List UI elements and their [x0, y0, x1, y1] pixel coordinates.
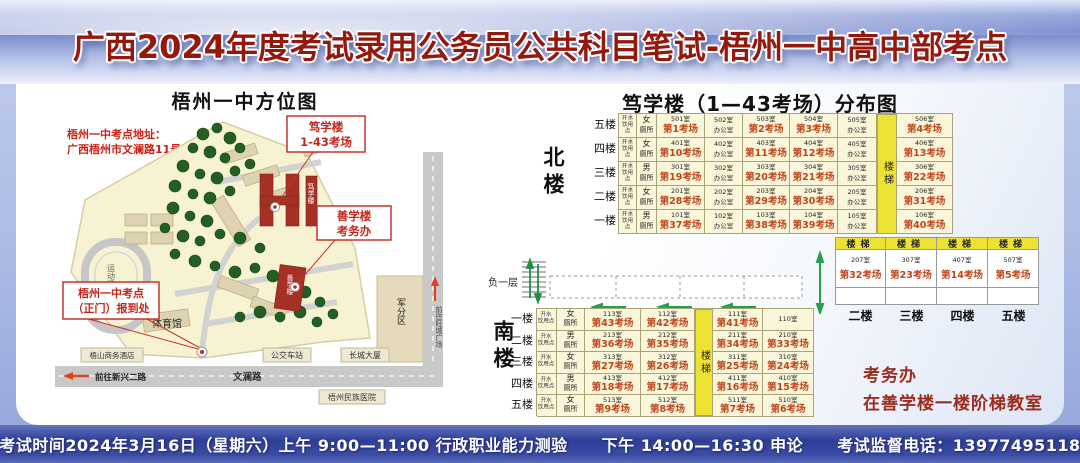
room-number: 310室 — [779, 354, 798, 361]
room-label: 第30考场 — [793, 197, 835, 207]
toilet-gender: 女 — [643, 116, 651, 125]
office-note-line1: 考务办 — [863, 362, 1043, 390]
room-number: 506室 — [915, 116, 934, 123]
room-label: 办公室 — [714, 199, 734, 206]
room-number: 202室 — [714, 189, 733, 196]
wing-column: 楼梯307室第23考场 — [886, 237, 937, 305]
toilet-label: 厕所 — [640, 151, 654, 159]
room-number: 501室 — [671, 116, 690, 123]
room-cell: 412室第17考场 — [641, 374, 695, 396]
water-cell: 开水饮用点 — [537, 395, 557, 417]
toilet-label: 厕所 — [640, 175, 654, 183]
room-cell: 205室办公室 — [838, 186, 877, 210]
room-number: 303室 — [757, 164, 776, 171]
south-floor-labels: 一楼二楼三楼四楼五楼 — [510, 308, 534, 416]
water-label: 开水饮用点 — [620, 140, 636, 159]
water-label: 开水饮用点 — [538, 356, 555, 369]
room-cell: 510室第6考场 — [763, 395, 814, 417]
toilet-cell: 女厕所 — [637, 186, 657, 210]
room-number: 410室 — [779, 375, 798, 382]
room-cell: 201室第28考场 — [657, 186, 705, 210]
callout-gate-line2: （正门）报到处 — [73, 301, 151, 315]
duxue-building: 笃学楼 — [260, 174, 317, 226]
room-cell: 407室第14考场 — [937, 250, 988, 288]
room-cell: 413室第18考场 — [585, 374, 641, 396]
room-number: 206室 — [915, 188, 934, 195]
room-cell: 404室第12考场 — [790, 138, 838, 162]
north-table: 开水饮用点女厕所501室第1考场502室办公室503室第2考场504室第3考场5… — [618, 113, 953, 234]
room-cell: 203室第29考场 — [743, 186, 790, 210]
room-cell: 410室第15考场 — [763, 374, 814, 396]
room-number: 102室 — [714, 213, 733, 220]
room-cell: 302室办公室 — [705, 162, 743, 186]
room-label: 第22考场 — [904, 173, 946, 183]
room-number: 103室 — [757, 212, 776, 219]
military-label: 军分区 — [395, 298, 406, 325]
toilet-gender: 男 — [643, 164, 651, 173]
exam-session-afternoon: 下午 14:00—16:30 申论 — [602, 432, 804, 456]
toilet-cell: 女厕所 — [557, 309, 585, 331]
toilet-gender: 女 — [567, 310, 575, 319]
banner: 广西2024年度考试录用公务员公共科目笔试-梧州一中高中部考点 — [0, 0, 1080, 84]
to-wangcheng-label: 前往旺城广场 — [435, 305, 443, 349]
room-cell: 102室办公室 — [705, 210, 743, 234]
room-label: 第7考场 — [720, 405, 755, 415]
room-number: 403室 — [757, 140, 776, 147]
room-cell: 206室第31考场 — [897, 186, 953, 210]
room-cell: 405室办公室 — [838, 138, 877, 162]
room-label: 第25考场 — [717, 362, 759, 372]
north-row: 开水饮用点女厕所201室第28考场202室办公室203室第29考场204室第30… — [619, 186, 953, 210]
water-cell: 开水饮用点 — [537, 331, 557, 353]
room-number: 507室 — [1004, 257, 1023, 264]
toilet-cell: 男厕所 — [557, 331, 585, 353]
map-address-line1: 梧州一中考点地址： — [67, 127, 166, 141]
empty-cell — [988, 288, 1039, 305]
room-cell: 313室第27考场 — [585, 352, 641, 374]
supervision-phone: 考试监督电话：13977495118 — [837, 432, 1080, 456]
room-cell: 110室 — [763, 309, 814, 331]
toilet-cell: 男厕所 — [637, 162, 657, 186]
basement-stairs-icon — [522, 262, 546, 297]
room-cell: 104室第39考场 — [790, 210, 838, 234]
room-number: 113室 — [603, 311, 622, 318]
toilet-cell: 女厕所 — [637, 138, 657, 162]
office-note: 考务办 在善学楼一楼阶梯教室 — [863, 362, 1043, 418]
water-line2: 饮用点 — [538, 362, 555, 368]
water-cell: 开水饮用点 — [619, 210, 637, 234]
poster: 广西2024年度考试录用公务员公共科目笔试-梧州一中高中部考点 梧州一中方位图 … — [0, 0, 1080, 463]
room-label: 第12考场 — [793, 149, 835, 159]
room-cell: 505室办公室 — [838, 114, 877, 138]
water-line2: 饮用点 — [620, 146, 636, 159]
room-number: 412室 — [658, 375, 677, 382]
stair-column: 楼梯 — [695, 309, 713, 416]
room-label: 第17考场 — [647, 383, 689, 393]
room-cell: 111室第41考场 — [713, 309, 763, 331]
room-number: 212室 — [658, 332, 677, 339]
toilet-cell: 男厕所 — [557, 374, 585, 396]
room-label: 办公室 — [847, 223, 867, 230]
floor-label: 三楼 — [886, 307, 937, 324]
room-label: 第8考场 — [650, 405, 685, 415]
room-number: 312室 — [658, 354, 677, 361]
room-number: 502室 — [714, 117, 733, 124]
north-row: 开水饮用点男厕所101室第37考场102室办公室103室第38考场104室第39… — [619, 210, 953, 234]
wing-column: 楼梯407室第14考场 — [937, 237, 988, 305]
floor-label: 五楼 — [592, 113, 618, 137]
toilet-gender: 男 — [643, 212, 651, 221]
callout-duxue-line1: 笃学楼 — [308, 120, 344, 134]
room-cell: 204室第30考场 — [790, 186, 838, 210]
room-label: 第16考场 — [717, 383, 759, 393]
room-number: 402室 — [714, 141, 733, 148]
room-number: 513室 — [603, 397, 622, 404]
room-number: 307室 — [902, 257, 921, 264]
room-cell: 502室办公室 — [705, 114, 743, 138]
room-cell: 307室第23考场 — [886, 250, 937, 288]
road-horizontal: 前往新兴二路 文澜路 — [55, 366, 443, 387]
south-row: 开水饮用点女厕所313室第27考场312室第26考场311室第25考场310室第… — [537, 352, 814, 374]
callout-gate-line1: 梧州一中考点 — [78, 286, 144, 300]
water-line2: 饮用点 — [538, 384, 555, 390]
room-cell: 511室第7考场 — [713, 395, 763, 417]
floor-label: 四楼 — [592, 137, 618, 161]
room-number: 504室 — [804, 116, 823, 123]
toilet-label: 厕所 — [640, 223, 654, 231]
wenlan-road-label: 文澜路 — [232, 371, 262, 383]
basement-stairs-arrows — [527, 260, 541, 302]
room-cell: 202室办公室 — [705, 186, 743, 210]
room-number: 407室 — [953, 257, 972, 264]
room-number: 205室 — [848, 189, 867, 196]
stair-cell: 楼梯 — [988, 237, 1039, 250]
toilet-cell: 女厕所 — [637, 114, 657, 138]
road-vertical: 前往旺城广场 — [423, 152, 443, 387]
room-cell: 304室第21考场 — [790, 162, 838, 186]
hospital-label: 梧州民族医院 — [328, 392, 376, 402]
changcheng-tower-label: 长城大厦 — [349, 350, 381, 360]
stair-cell: 楼梯 — [835, 237, 886, 250]
room-cell: 503室第2考场 — [743, 114, 790, 138]
toilet-gender: 男 — [567, 332, 575, 341]
room-number: 213室 — [603, 332, 622, 339]
room-cell: 103室第38考场 — [743, 210, 790, 234]
room-label: 办公室 — [847, 151, 867, 158]
water-label: 开水饮用点 — [538, 377, 555, 390]
distribution-panel: 笃学楼（1—43考场）分布图 北楼 五楼四楼三楼二楼一楼 开水饮用点女厕所501… — [500, 86, 1072, 431]
basement-corridor: 负一层 — [488, 250, 844, 314]
room-label: 第43考场 — [592, 319, 634, 329]
water-label: 开水饮用点 — [620, 188, 636, 207]
room-label: 办公室 — [714, 127, 734, 134]
water-line2: 饮用点 — [620, 194, 636, 207]
bus-station-label: 公交车站 — [271, 350, 303, 360]
room-label: 第21考场 — [793, 173, 835, 183]
room-number: 105室 — [848, 213, 867, 220]
stair-cell: 楼梯 — [886, 237, 937, 250]
room-cell: 306室第22考场 — [897, 162, 953, 186]
room-label: 办公室 — [847, 175, 867, 182]
room-number: 211室 — [728, 332, 747, 339]
room-cell: 401室第10考场 — [657, 138, 705, 162]
bottom-bar: 考试时间2024年3月16日（星期六）上午 9:00—11:00 行政职业能力测… — [0, 425, 1080, 463]
room-label: 第42考场 — [647, 319, 689, 329]
room-label: 办公室 — [714, 223, 734, 230]
room-number: 302室 — [714, 165, 733, 172]
water-label: 开水饮用点 — [538, 313, 555, 326]
room-number: 406室 — [915, 140, 934, 147]
room-number: 110室 — [779, 316, 798, 323]
floor-label: 四楼 — [937, 307, 988, 324]
room-label: 第6考场 — [770, 405, 805, 415]
room-number: 305室 — [848, 165, 867, 172]
room-label: 第35考场 — [647, 340, 689, 350]
room-cell: 312室第26考场 — [641, 352, 695, 374]
room-number: 313室 — [603, 354, 622, 361]
room-label: 办公室 — [847, 199, 867, 206]
map-address-line2: 广西梧州市文澜路11号 — [67, 142, 181, 156]
wing-floor-labels: 二楼三楼四楼五楼 — [835, 307, 1039, 324]
duxue-building-label: 笃学楼 — [307, 182, 315, 205]
room-label: 第40考场 — [904, 221, 946, 231]
room-cell: 310室第24考场 — [763, 352, 814, 374]
map-title: 梧州一中方位图 — [171, 90, 318, 113]
floor-label: 二楼 — [592, 185, 618, 209]
toilet-label: 厕所 — [564, 320, 578, 328]
floor-label: 四楼 — [510, 373, 534, 395]
room-cell: 101室第37考场 — [657, 210, 705, 234]
toilet-gender: 男 — [567, 375, 575, 384]
toilet-label: 厕所 — [640, 127, 654, 135]
room-label: 第41考场 — [717, 319, 759, 329]
toilet-gender: 女 — [643, 188, 651, 197]
room-number: 112室 — [658, 311, 677, 318]
room-label: 第29考场 — [745, 197, 787, 207]
room-number: 306室 — [915, 164, 934, 171]
room-number: 210室 — [779, 332, 798, 339]
room-label: 第28考场 — [660, 197, 702, 207]
room-number: 411室 — [728, 375, 747, 382]
floor-label: 三楼 — [510, 351, 534, 373]
room-cell: 113室第43考场 — [585, 309, 641, 331]
callout-shanxue-line2: 考务办 — [337, 224, 372, 238]
room-number: 405室 — [848, 141, 867, 148]
north-row: 开水饮用点女厕所501室第1考场502室办公室503室第2考场504室第3考场5… — [619, 114, 953, 138]
room-label: 第19考场 — [660, 173, 702, 183]
water-line2: 饮用点 — [620, 170, 636, 183]
water-label: 开水饮用点 — [620, 116, 636, 135]
room-cell: 303室第20考场 — [743, 162, 790, 186]
room-number: 413室 — [603, 375, 622, 382]
room-label: 第14考场 — [941, 271, 983, 281]
room-label: 第36考场 — [592, 340, 634, 350]
water-label: 开水饮用点 — [538, 399, 555, 412]
basement-label: 负一层 — [488, 276, 518, 289]
room-label: 办公室 — [714, 175, 734, 182]
room-number: 101室 — [671, 212, 690, 219]
wing-column: 楼梯507室第5考场 — [988, 237, 1039, 305]
room-number: 207室 — [851, 257, 870, 264]
room-cell: 305室办公室 — [838, 162, 877, 186]
room-number: 201室 — [671, 188, 690, 195]
room-label: 第1考场 — [663, 125, 698, 135]
room-cell: 211室第34考场 — [713, 331, 763, 353]
toilet-label: 厕所 — [564, 406, 578, 414]
room-label: 第39考场 — [793, 221, 835, 231]
room-label: 办公室 — [714, 151, 734, 158]
water-line2: 饮用点 — [538, 341, 555, 347]
water-label: 开水饮用点 — [620, 212, 636, 231]
room-number: 203室 — [757, 188, 776, 195]
toilet-cell: 男厕所 — [637, 210, 657, 234]
water-label: 开水饮用点 — [538, 334, 555, 347]
exam-session-morning: 考试时间2024年3月16日（星期六）上午 9:00—11:00 行政职业能力测… — [0, 432, 568, 456]
north-row: 开水饮用点男厕所301室第19考场302室办公室303室第20考场304室第21… — [619, 162, 953, 186]
toilet-label: 厕所 — [640, 199, 654, 207]
stair-column: 楼梯 — [877, 114, 897, 234]
room-number: 503室 — [757, 116, 776, 123]
room-label: 第31考场 — [904, 197, 946, 207]
toilet-gender: 女 — [567, 396, 575, 405]
hotel-label: 梧山商务酒店 — [90, 350, 135, 360]
room-cell: 112室第42考场 — [641, 309, 695, 331]
room-cell: 311室第25考场 — [713, 352, 763, 374]
office-note-line2: 在善学楼一楼阶梯教室 — [863, 390, 1043, 418]
room-label: 第5考场 — [995, 271, 1030, 281]
south-table: 开水饮用点女厕所113室第43考场112室第42考场111室第41考场110室开… — [536, 308, 814, 416]
room-label: 第20考场 — [745, 173, 787, 183]
north-row: 开水饮用点女厕所401室第10考场402室办公室403室第11考场404室第12… — [619, 138, 953, 162]
room-label: 第34考场 — [717, 340, 759, 350]
room-label: 第3考场 — [796, 125, 831, 135]
room-label: 第23考场 — [890, 271, 932, 281]
water-cell: 开水饮用点 — [537, 352, 557, 374]
callout-duxue: 笃学楼 1-43考场 — [287, 116, 365, 152]
room-cell: 507室第5考场 — [988, 250, 1039, 288]
north-building-label: 北楼 — [538, 146, 568, 200]
room-number: 301室 — [671, 164, 690, 171]
water-cell: 开水饮用点 — [619, 138, 637, 162]
room-cell: 105室办公室 — [838, 210, 877, 234]
water-line2: 饮用点 — [620, 122, 636, 135]
water-cell: 开水饮用点 — [537, 309, 557, 331]
water-label: 开水饮用点 — [620, 164, 636, 183]
room-label: 第15考场 — [767, 383, 809, 393]
room-number: 304室 — [804, 164, 823, 171]
floor-label: 五楼 — [988, 307, 1039, 324]
room-cell: 106室第40考场 — [897, 210, 953, 234]
floor-label: 一楼 — [592, 209, 618, 233]
floor-label: 五楼 — [510, 394, 534, 416]
south-row: 开水饮用点男厕所213室第36考场212室第35考场211室第34考场210室第… — [537, 331, 814, 353]
water-cell: 开水饮用点 — [537, 374, 557, 396]
south-row: 开水饮用点女厕所513室第9考场512室第8考场511室第7考场510室第6考场 — [537, 395, 814, 417]
callout-gate: 梧州一中考点 （正门）报到处 — [63, 282, 159, 319]
toilet-label: 厕所 — [564, 363, 578, 371]
stair-cell: 楼梯 — [937, 237, 988, 250]
room-cell: 402室办公室 — [705, 138, 743, 162]
room-cell: 506室第4考场 — [897, 114, 953, 138]
callout-shanxue: 善学楼 考务办 — [317, 206, 391, 240]
room-cell: 504室第3考场 — [790, 114, 838, 138]
room-number: 404室 — [804, 140, 823, 147]
room-cell: 406室第13考场 — [897, 138, 953, 162]
room-label: 办公室 — [847, 127, 867, 134]
floor-label: 一楼 — [510, 308, 534, 330]
room-label: 第26考场 — [647, 362, 689, 372]
room-label: 第33考场 — [767, 340, 809, 350]
room-number: 511室 — [728, 397, 747, 404]
floor-label: 三楼 — [592, 161, 618, 185]
to-xinxing-label: 前往新兴二路 — [95, 372, 147, 383]
room-label: 第9考场 — [595, 405, 630, 415]
water-cell: 开水饮用点 — [619, 186, 637, 210]
toilet-gender: 女 — [567, 353, 575, 362]
toilet-gender: 女 — [643, 140, 651, 149]
room-label: 第18考场 — [592, 383, 634, 393]
south-row: 开水饮用点男厕所413室第18考场412室第17考场411室第16考场410室第… — [537, 374, 814, 396]
room-label: 第11考场 — [745, 149, 787, 159]
room-number: 401室 — [671, 140, 690, 147]
room-cell: 513室第9考场 — [585, 395, 641, 417]
toilet-cell: 女厕所 — [557, 395, 585, 417]
room-number: 104室 — [804, 212, 823, 219]
room-number: 204室 — [804, 188, 823, 195]
banner-title: 广西2024年度考试录用公务员公共科目笔试-梧州一中高中部考点 — [0, 22, 1080, 68]
callout-shanxue-line1: 善学楼 — [337, 209, 372, 223]
water-cell: 开水饮用点 — [619, 114, 637, 138]
campus-map: 梧州一中方位图 梧州一中考点地址： 广西梧州市文澜路11号 运动场 — [55, 86, 507, 428]
water-cell: 开水饮用点 — [619, 162, 637, 186]
room-number: 311室 — [728, 354, 747, 361]
toilet-label: 厕所 — [564, 342, 578, 350]
water-line2: 饮用点 — [538, 319, 555, 325]
room-cell: 301室第19考场 — [657, 162, 705, 186]
room-label: 第32考场 — [840, 271, 882, 281]
water-line2: 饮用点 — [620, 218, 636, 231]
room-cell: 411室第16考场 — [713, 374, 763, 396]
room-label: 第27考场 — [592, 362, 634, 372]
room-cell: 213室第36考场 — [585, 331, 641, 353]
room-label: 第4考场 — [907, 125, 942, 135]
empty-cell — [886, 288, 937, 305]
room-label: 第24考场 — [767, 362, 809, 372]
room-number: 106室 — [915, 212, 934, 219]
room-label: 第13考场 — [904, 149, 946, 159]
room-label: 第38考场 — [745, 221, 787, 231]
room-number: 510室 — [779, 397, 798, 404]
room-cell: 501室第1考场 — [657, 114, 705, 138]
room-label: 第10考场 — [660, 149, 702, 159]
room-label: 第37考场 — [660, 221, 702, 231]
floor-label: 二楼 — [510, 330, 534, 352]
empty-cell — [937, 288, 988, 305]
toilet-cell: 女厕所 — [557, 352, 585, 374]
water-line2: 饮用点 — [538, 405, 555, 411]
room-label: 第2考场 — [748, 125, 783, 135]
south-row: 开水饮用点女厕所113室第43考场112室第42考场111室第41考场110室 — [537, 309, 814, 331]
toilet-label: 厕所 — [564, 385, 578, 393]
corridor-outline — [550, 276, 802, 298]
callout-duxue-line2: 1-43考场 — [300, 135, 352, 149]
room-cell: 403室第11考场 — [743, 138, 790, 162]
room-number: 512室 — [658, 397, 677, 404]
room-number: 111室 — [728, 311, 747, 318]
wing-table: 楼梯207室第32考场楼梯307室第23考场楼梯407室第14考场楼梯507室第… — [835, 237, 1039, 305]
room-cell: 210室第33考场 — [763, 331, 814, 353]
room-cell: 212室第35考场 — [641, 331, 695, 353]
